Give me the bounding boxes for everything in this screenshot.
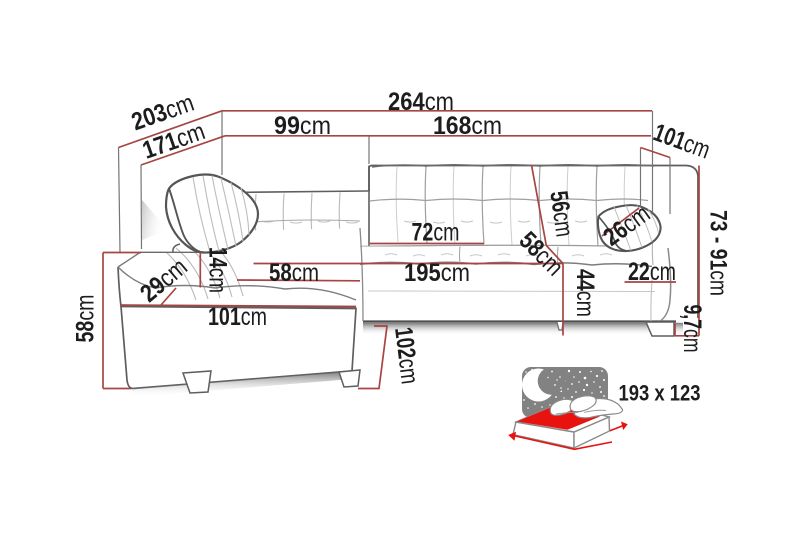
svg-text:44cm: 44cm (571, 269, 599, 317)
svg-text:58cm: 58cm (269, 259, 319, 287)
svg-text:14cm: 14cm (204, 247, 232, 293)
svg-text:9,7cm: 9,7cm (678, 305, 706, 353)
svg-text:101cm: 101cm (208, 303, 267, 331)
svg-text:193 x 123: 193 x 123 (619, 381, 701, 406)
svg-text:72cm: 72cm (412, 219, 460, 247)
svg-text:58cm: 58cm (72, 295, 100, 343)
svg-text:22cm: 22cm (628, 258, 676, 286)
svg-text:99cm: 99cm (274, 112, 331, 140)
svg-text:73 - 91cm: 73 - 91cm (705, 210, 732, 296)
svg-text:195cm: 195cm (404, 259, 470, 287)
svg-text:168cm: 168cm (433, 112, 502, 140)
